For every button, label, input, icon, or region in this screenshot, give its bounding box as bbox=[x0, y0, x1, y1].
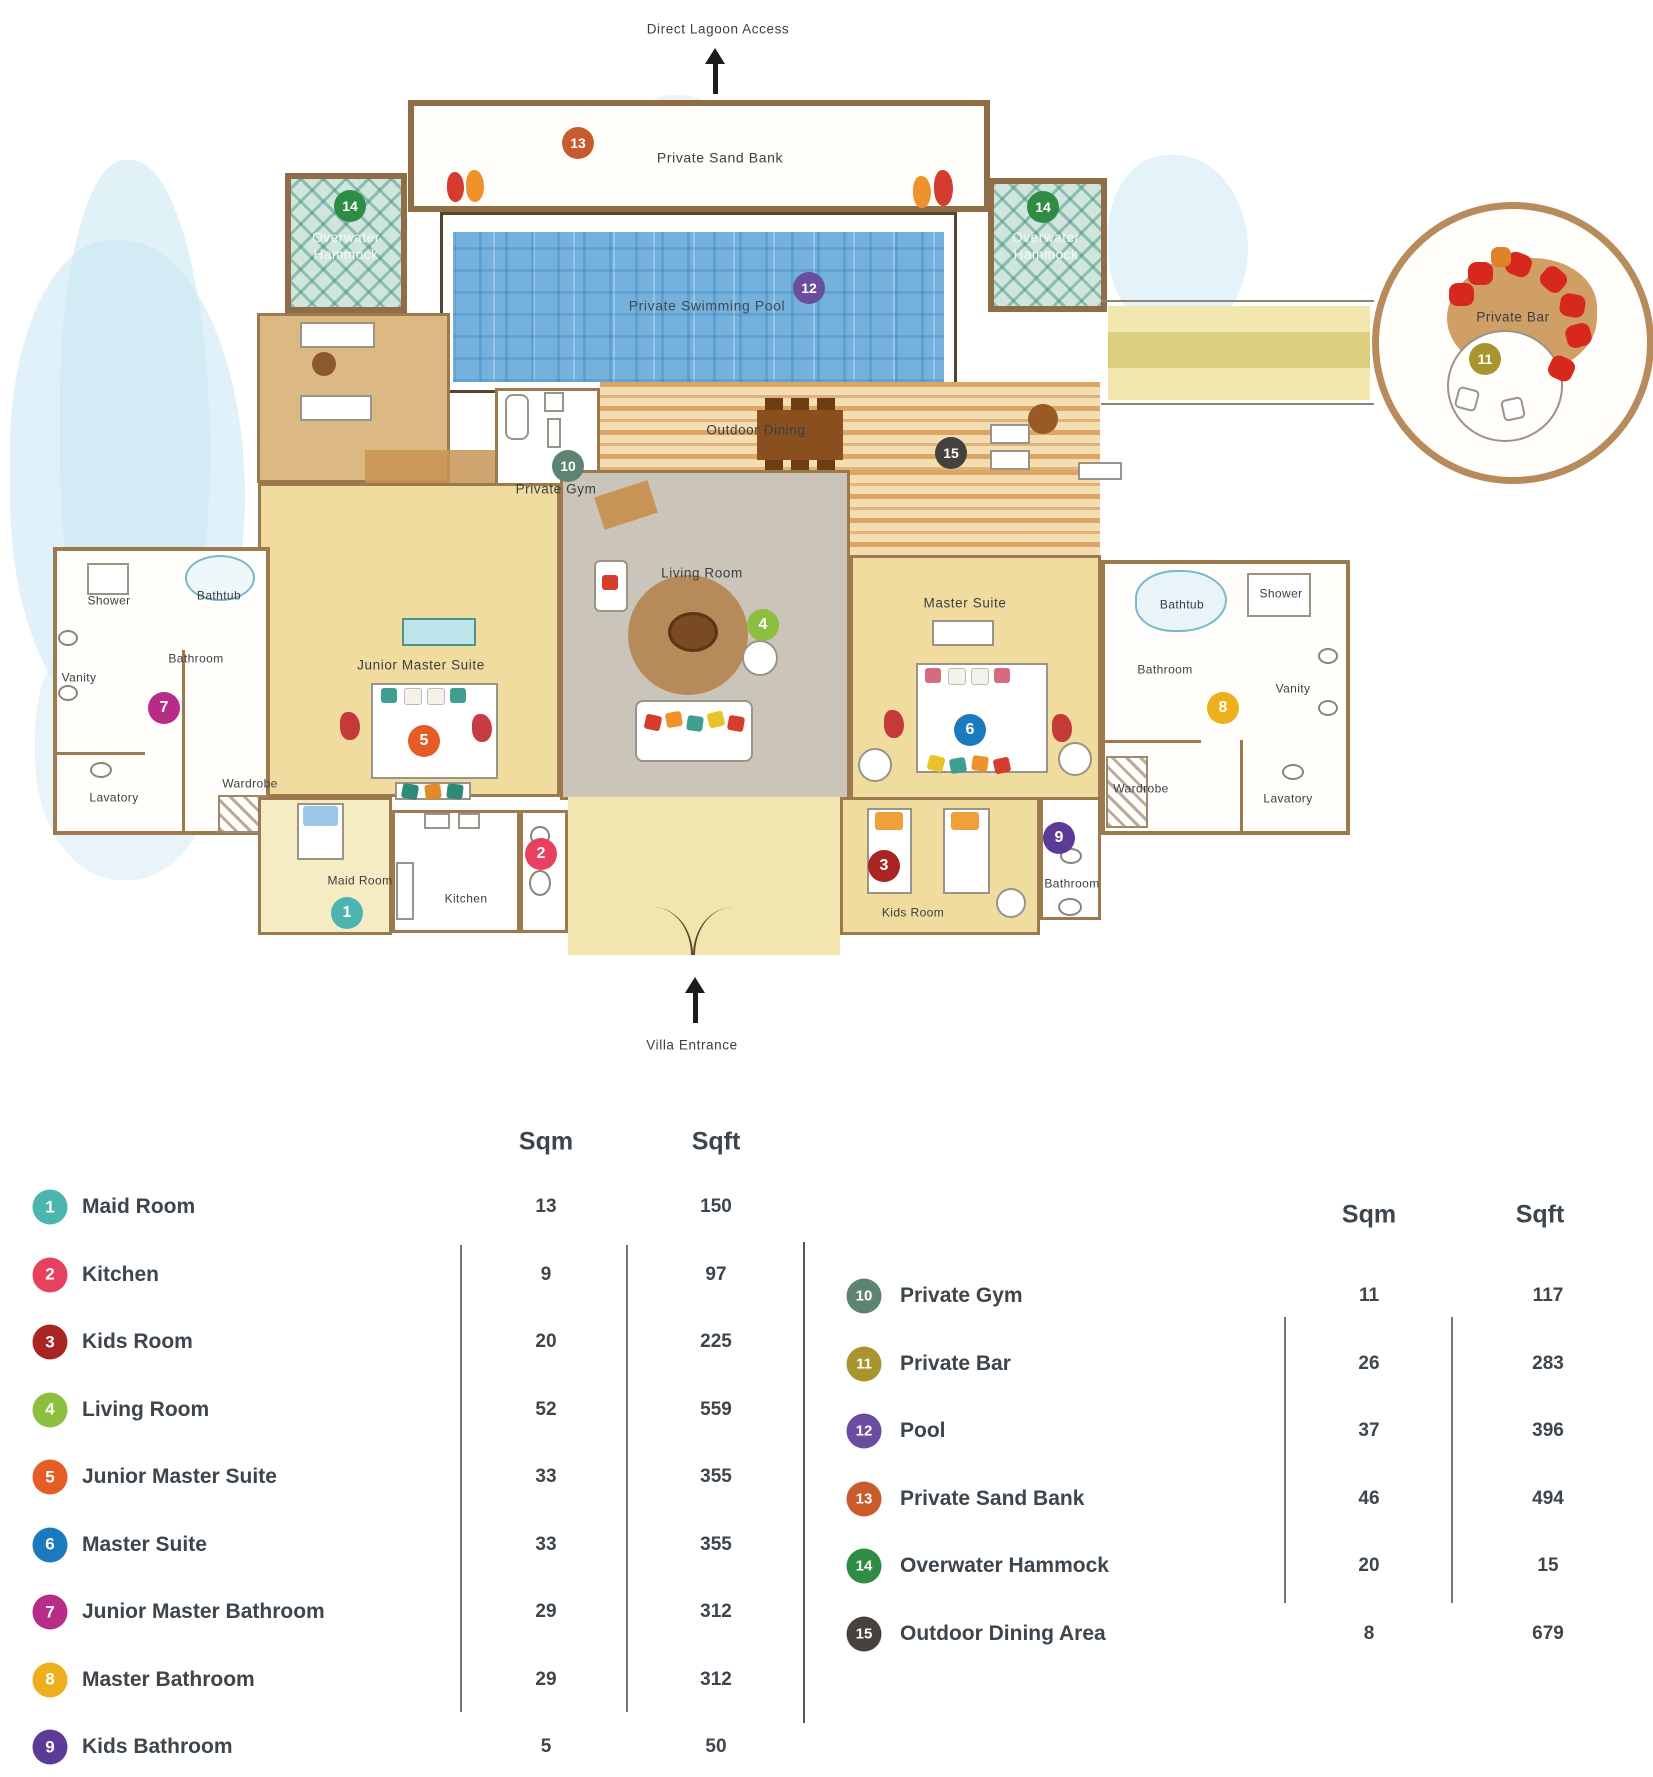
bar-seat bbox=[1500, 396, 1526, 422]
corridor-floor bbox=[1108, 332, 1370, 368]
bed-pillow bbox=[427, 688, 445, 705]
legend-label-7: Junior Master Bathroom bbox=[82, 1600, 325, 1624]
vanity-sink bbox=[58, 630, 78, 646]
legend-sqm-14: 20 bbox=[1358, 1555, 1379, 1577]
plant bbox=[1052, 714, 1072, 742]
kitchen-counter bbox=[396, 862, 414, 920]
legend-label-3: Kids Room bbox=[82, 1330, 193, 1354]
legend-label-14: Overwater Hammock bbox=[900, 1554, 1109, 1578]
wall bbox=[1101, 740, 1201, 743]
room-label-private-swimming-pool: Private Swimming Pool bbox=[629, 297, 786, 315]
sun-lounger bbox=[300, 322, 375, 348]
room-label-shower-right: Shower bbox=[1259, 587, 1302, 602]
legend-sqm-3: 20 bbox=[535, 1331, 556, 1353]
legend-label-4: Living Room bbox=[82, 1398, 209, 1422]
room-label-bathroom-right: Bathroom bbox=[1137, 663, 1192, 678]
plan-marker-9: 9 bbox=[1043, 822, 1075, 854]
legend-sqm-13: 46 bbox=[1358, 1488, 1379, 1510]
sun-lounger bbox=[300, 395, 372, 421]
legend-sqm-9: 5 bbox=[541, 1736, 552, 1758]
legend-badge-6: 6 bbox=[33, 1527, 68, 1562]
dining-chair bbox=[817, 398, 835, 410]
room-label-wardrobe-left: Wardrobe bbox=[222, 777, 277, 792]
kids-pillow bbox=[875, 812, 903, 830]
tv-console bbox=[932, 620, 994, 646]
toilet bbox=[90, 762, 112, 778]
shower-stall bbox=[87, 563, 129, 595]
armchair-pillow bbox=[602, 575, 618, 590]
bar-stool bbox=[1468, 262, 1493, 285]
plant bbox=[472, 714, 492, 742]
legend-label-13: Private Sand Bank bbox=[900, 1487, 1084, 1511]
bench-pillow bbox=[424, 783, 442, 800]
gym-equipment bbox=[544, 392, 564, 412]
room-label-bathtub-left: Bathtub bbox=[197, 589, 241, 604]
dining-chair bbox=[765, 398, 783, 410]
lounge-chair bbox=[990, 424, 1030, 444]
sofa-pillow bbox=[644, 714, 663, 732]
kids-bath-toilet bbox=[1058, 898, 1082, 916]
legend-badge-2: 2 bbox=[33, 1257, 68, 1292]
plan-marker-14: 14 bbox=[1027, 191, 1059, 223]
plan-marker-5: 5 bbox=[408, 725, 440, 757]
plant bbox=[884, 710, 904, 738]
legend-label-9: Kids Bathroom bbox=[82, 1735, 233, 1759]
bar-stool-orange bbox=[1491, 247, 1511, 267]
room-label-bathtub-right: Bathtub bbox=[1160, 598, 1204, 613]
room-label-overwater-hammock-left: Overwater Hammock bbox=[312, 230, 380, 264]
plan-marker-15: 15 bbox=[935, 437, 967, 469]
plan-marker-3: 3 bbox=[868, 850, 900, 882]
legend-label-6: Master Suite bbox=[82, 1533, 207, 1557]
vanity-sink bbox=[1318, 700, 1338, 716]
room-label-private-bar: Private Bar bbox=[1476, 310, 1549, 327]
room-label-private-sand-bank: Private Sand Bank bbox=[657, 149, 783, 167]
maid-bed-pillow bbox=[303, 806, 338, 826]
bed-pillow bbox=[994, 668, 1010, 683]
wall bbox=[182, 650, 185, 835]
outdoor-dining-area bbox=[850, 470, 1100, 555]
sofa-pillow bbox=[686, 715, 704, 732]
wall bbox=[53, 752, 145, 755]
room-label-vanity-right: Vanity bbox=[1276, 682, 1311, 697]
room-label-master-suite: Master Suite bbox=[924, 596, 1007, 613]
gym-equipment bbox=[505, 394, 529, 440]
legend-sqm-5: 33 bbox=[535, 1466, 556, 1488]
legend-badge-15: 15 bbox=[847, 1616, 882, 1651]
plan-marker-14: 14 bbox=[334, 190, 366, 222]
room-label-living-room: Living Room bbox=[661, 566, 743, 583]
coffee-table bbox=[668, 612, 718, 652]
legend-sqft-12: 396 bbox=[1532, 1420, 1564, 1442]
legend-label-11: Private Bar bbox=[900, 1352, 1011, 1376]
legend-badge-10: 10 bbox=[847, 1279, 882, 1314]
legend-divider bbox=[460, 1245, 462, 1712]
bed-pillow bbox=[925, 668, 941, 683]
vanity-sink bbox=[1318, 648, 1338, 664]
legend-label-1: Maid Room bbox=[82, 1195, 195, 1219]
legend-sqft-7: 312 bbox=[700, 1601, 732, 1623]
room-label-maid-room: Maid Room bbox=[328, 874, 393, 889]
legend-right-sqft-header: Sqft bbox=[1516, 1201, 1565, 1230]
plan-marker-7: 7 bbox=[148, 692, 180, 724]
bed-pillow bbox=[971, 668, 989, 685]
vanity-sink bbox=[58, 685, 78, 701]
room-label-lavatory-left: Lavatory bbox=[89, 791, 138, 806]
plan-marker-8: 8 bbox=[1207, 692, 1239, 724]
room-label-bathroom-left: Bathroom bbox=[168, 652, 223, 667]
legend-right-sqm-header: Sqm bbox=[1342, 1201, 1396, 1230]
bed-pillow bbox=[450, 688, 466, 703]
legend-sqm-15: 8 bbox=[1364, 1623, 1375, 1645]
corridor-wall bbox=[1101, 403, 1374, 405]
legend-label-10: Private Gym bbox=[900, 1284, 1023, 1308]
powder-toilet bbox=[529, 870, 551, 896]
legend-badge-4: 4 bbox=[33, 1392, 68, 1427]
legend-left-sqm-header: Sqm bbox=[519, 1128, 573, 1157]
legend-divider bbox=[1284, 1317, 1286, 1603]
tv-console bbox=[402, 618, 476, 646]
legend-divider bbox=[626, 1245, 628, 1712]
legend-sqm-7: 29 bbox=[535, 1601, 556, 1623]
room-label-wardrobe-right: Wardrobe bbox=[1113, 782, 1168, 797]
legend-badge-7: 7 bbox=[33, 1595, 68, 1630]
plant bbox=[340, 712, 360, 740]
legend-sqm-2: 9 bbox=[541, 1264, 552, 1286]
legend-sqm-6: 33 bbox=[535, 1534, 556, 1556]
round-chair bbox=[858, 748, 892, 782]
gym-equipment bbox=[547, 418, 561, 448]
bed-cushion bbox=[971, 755, 989, 772]
wall bbox=[1240, 740, 1243, 835]
legend-divider bbox=[1451, 1317, 1453, 1603]
villa-floor-plan-page: Direct Lagoon Access bbox=[0, 0, 1653, 1777]
legend-sqm-11: 26 bbox=[1358, 1353, 1379, 1375]
lagoon-access-label: Direct Lagoon Access bbox=[647, 22, 790, 39]
legend-label-15: Outdoor Dining Area bbox=[900, 1622, 1106, 1646]
plan-marker-12: 12 bbox=[793, 272, 825, 304]
plan-marker-10: 10 bbox=[552, 450, 584, 482]
legend-sqm-12: 37 bbox=[1358, 1420, 1379, 1442]
room-label-private-gym: Private Gym bbox=[516, 482, 597, 499]
room-label-shower-left: Shower bbox=[87, 594, 130, 609]
legend-sqft-3: 225 bbox=[700, 1331, 732, 1353]
plan-marker-13: 13 bbox=[562, 127, 594, 159]
room-label-kids-room: Kids Room bbox=[882, 906, 944, 921]
legend-label-5: Junior Master Suite bbox=[82, 1465, 277, 1489]
dining-chair bbox=[791, 398, 809, 410]
kids-pillow bbox=[951, 812, 979, 830]
round-chair bbox=[1058, 742, 1092, 776]
legend-badge-1: 1 bbox=[33, 1190, 68, 1225]
kitchen-sink bbox=[424, 813, 450, 829]
side-table bbox=[312, 352, 336, 376]
legend-sqft-9: 50 bbox=[705, 1736, 726, 1758]
legend-label-2: Kitchen bbox=[82, 1263, 159, 1287]
legend-sqm-10: 11 bbox=[1359, 1285, 1379, 1307]
armchair bbox=[742, 640, 778, 676]
plan-marker-1: 1 bbox=[331, 897, 363, 929]
legend-left-sqft-header: Sqft bbox=[692, 1128, 741, 1157]
room-label-outdoor-dining: Outdoor Dining bbox=[706, 423, 805, 440]
bed-pillow bbox=[404, 688, 422, 705]
sofa-pillow bbox=[665, 711, 683, 729]
sofa-pillow bbox=[727, 715, 745, 733]
kitchen-hob bbox=[458, 813, 480, 829]
villa-entrance-label: Villa Entrance bbox=[646, 1038, 737, 1055]
room-label-overwater-hammock-right: Overwater Hammock bbox=[1012, 230, 1080, 264]
legend-sqft-15: 679 bbox=[1532, 1623, 1564, 1645]
legend-sqft-10: 117 bbox=[1533, 1285, 1564, 1307]
fire-pit bbox=[1028, 404, 1058, 434]
legend-sqft-13: 494 bbox=[1532, 1488, 1564, 1510]
legend-badge-8: 8 bbox=[33, 1662, 68, 1697]
legend-badge-11: 11 bbox=[847, 1346, 882, 1381]
legend-badge-9: 9 bbox=[33, 1730, 68, 1765]
legend-sqft-6: 355 bbox=[700, 1534, 732, 1556]
plan-marker-6: 6 bbox=[954, 714, 986, 746]
legend-divider bbox=[803, 1242, 805, 1723]
toilet bbox=[1282, 764, 1304, 780]
legend-sqft-8: 312 bbox=[700, 1669, 732, 1691]
bed-pillow bbox=[948, 668, 966, 685]
lounge-chair bbox=[990, 450, 1030, 470]
legend-sqft-4: 559 bbox=[700, 1399, 732, 1421]
legend-sqft-1: 150 bbox=[700, 1196, 732, 1218]
kids-chair bbox=[996, 888, 1026, 918]
legend-badge-3: 3 bbox=[33, 1325, 68, 1360]
room-label-junior-master-suite: Junior Master Suite bbox=[357, 658, 485, 675]
room-label-kitchen: Kitchen bbox=[445, 892, 488, 907]
room-label-vanity-left: Vanity bbox=[62, 671, 97, 686]
legend-badge-13: 13 bbox=[847, 1481, 882, 1516]
bench bbox=[1078, 462, 1122, 480]
legend-badge-12: 12 bbox=[847, 1414, 882, 1449]
legend-badge-14: 14 bbox=[847, 1549, 882, 1584]
bed-cushion bbox=[949, 757, 967, 775]
legend-sqft-5: 355 bbox=[700, 1466, 732, 1488]
plan-marker-11: 11 bbox=[1469, 343, 1501, 375]
legend-badge-5: 5 bbox=[33, 1460, 68, 1495]
bed-pillow bbox=[381, 688, 397, 703]
legend-sqm-4: 52 bbox=[535, 1399, 556, 1421]
legend-sqft-2: 97 bbox=[705, 1264, 726, 1286]
legend-sqft-14: 15 bbox=[1537, 1555, 1558, 1577]
legend-label-12: Pool bbox=[900, 1419, 946, 1443]
legend-label-8: Master Bathroom bbox=[82, 1668, 255, 1692]
bench-pillow bbox=[401, 783, 419, 801]
bench-pillow bbox=[446, 783, 463, 800]
plan-marker-2: 2 bbox=[525, 838, 557, 870]
room-label-lavatory-right: Lavatory bbox=[1263, 792, 1312, 807]
plan-marker-4: 4 bbox=[747, 609, 779, 641]
bar-stool bbox=[1449, 283, 1474, 306]
legend-sqft-11: 283 bbox=[1532, 1353, 1564, 1375]
room-label-kids-bathroom: Bathroom bbox=[1044, 877, 1099, 892]
corridor-wall bbox=[1101, 300, 1374, 302]
legend-sqm-1: 13 bbox=[535, 1196, 556, 1218]
legend-sqm-8: 29 bbox=[535, 1669, 556, 1691]
